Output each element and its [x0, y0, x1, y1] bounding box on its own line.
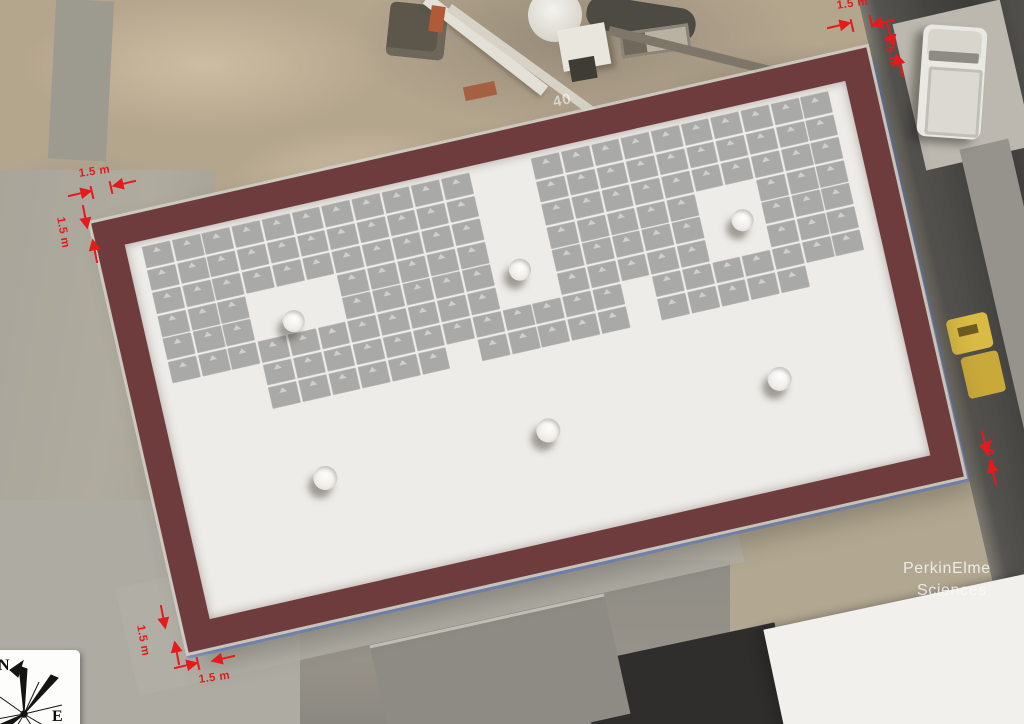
- imagery-watermark-line2: Sciences: [917, 582, 987, 600]
- compass-graphic: N E: [0, 650, 80, 724]
- roof-vent: [534, 416, 563, 445]
- pickup-truck-icon: [916, 24, 988, 140]
- site-container: [568, 56, 597, 82]
- imagery-watermark-line1: PerkinElme: [903, 560, 991, 578]
- truck-bed: [924, 66, 983, 138]
- roof-vent: [281, 308, 307, 334]
- compass-north-label: N: [0, 657, 10, 674]
- satellite-gravel-strip: [48, 0, 114, 161]
- compass-rose: N E: [0, 650, 80, 724]
- roof-vent: [729, 207, 755, 233]
- aerial-solar-layout: 40 1.5 m1.5 m1.5 m1.5 m1.5 m1.5 m1.5 m P…: [0, 0, 1024, 724]
- roof-vent: [507, 256, 533, 282]
- roof-vent: [311, 464, 340, 493]
- compass-east-label: E: [52, 708, 63, 724]
- roof-vent: [765, 364, 794, 393]
